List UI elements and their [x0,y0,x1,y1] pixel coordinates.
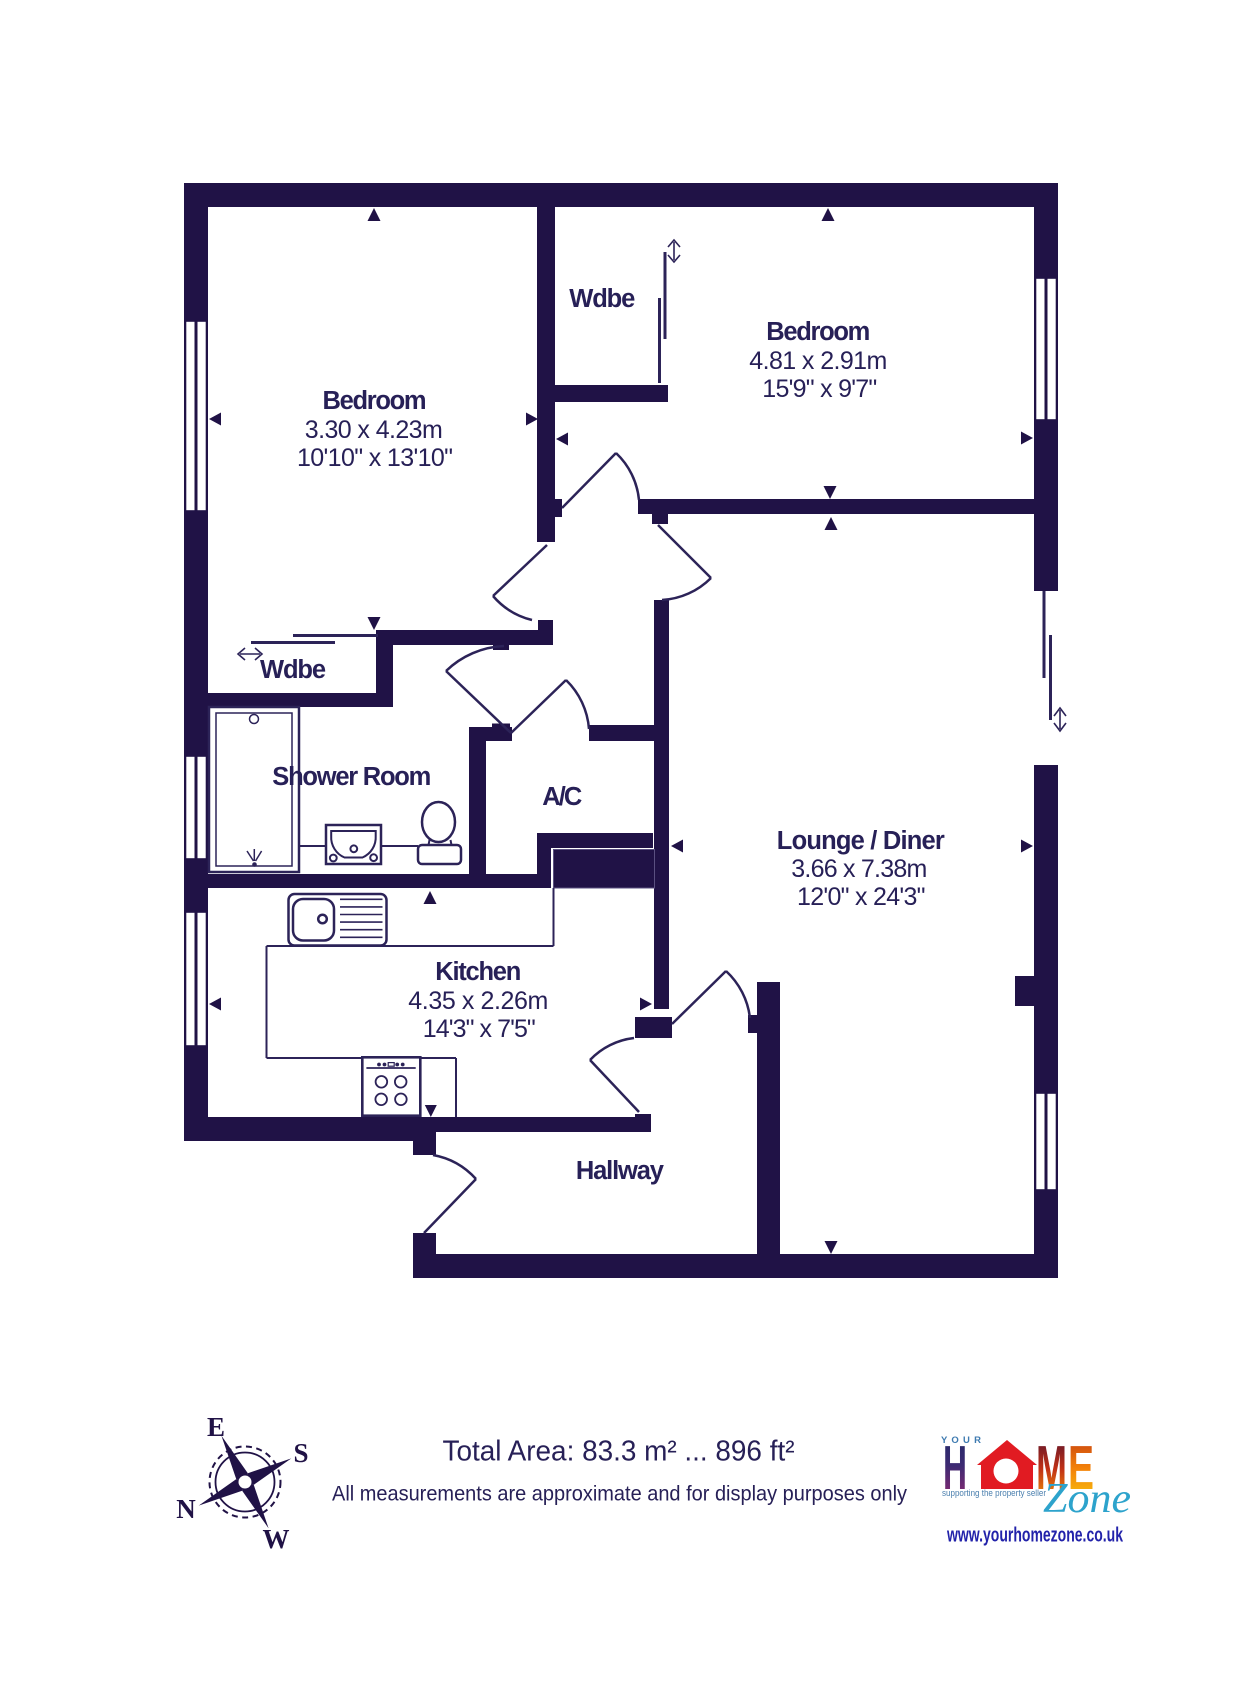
svg-text:4.35 x 2.26m: 4.35 x 2.26m [408,987,548,1015]
svg-text:E: E [207,1412,225,1442]
svg-text:supporting the property seller: supporting the property seller [942,1488,1046,1498]
svg-text:Kitchen: Kitchen [435,958,521,986]
svg-text:3.30 x 4.23m: 3.30 x 4.23m [305,416,443,444]
svg-text:Total Area: 83.3 m² ... 896 ft: Total Area: 83.3 m² ... 896 ft² [443,1436,795,1468]
svg-text:Wdbe: Wdbe [260,656,326,684]
svg-text:www.yourhomezone.co.uk: www.yourhomezone.co.uk [946,1525,1123,1547]
svg-text:Zone: Zone [1043,1476,1131,1522]
svg-text:Bedroom: Bedroom [323,387,427,415]
svg-text:Bedroom: Bedroom [766,318,870,346]
svg-text:15'9" x 9'7": 15'9" x 9'7" [762,375,877,403]
svg-text:3.66 x 7.38m: 3.66 x 7.38m [791,855,927,883]
svg-text:12'0" x 24'3": 12'0" x 24'3" [797,883,926,911]
svg-text:Wdbe: Wdbe [569,285,635,313]
svg-text:A/C: A/C [542,783,582,811]
svg-text:Shower Room: Shower Room [272,763,431,791]
svg-text:14'3" x 7'5": 14'3" x 7'5" [423,1015,536,1043]
svg-text:All measurements are approxima: All measurements are approximate and for… [332,1483,907,1506]
svg-text:Lounge / Diner: Lounge / Diner [777,827,945,855]
svg-text:4.81 x 2.91m: 4.81 x 2.91m [749,347,887,375]
svg-text:10'10" x 13'10": 10'10" x 13'10" [297,444,453,472]
svg-text:W: W [263,1524,290,1554]
svg-text:N: N [176,1494,196,1524]
svg-text:S: S [293,1438,308,1468]
svg-text:Hallway: Hallway [576,1157,665,1185]
